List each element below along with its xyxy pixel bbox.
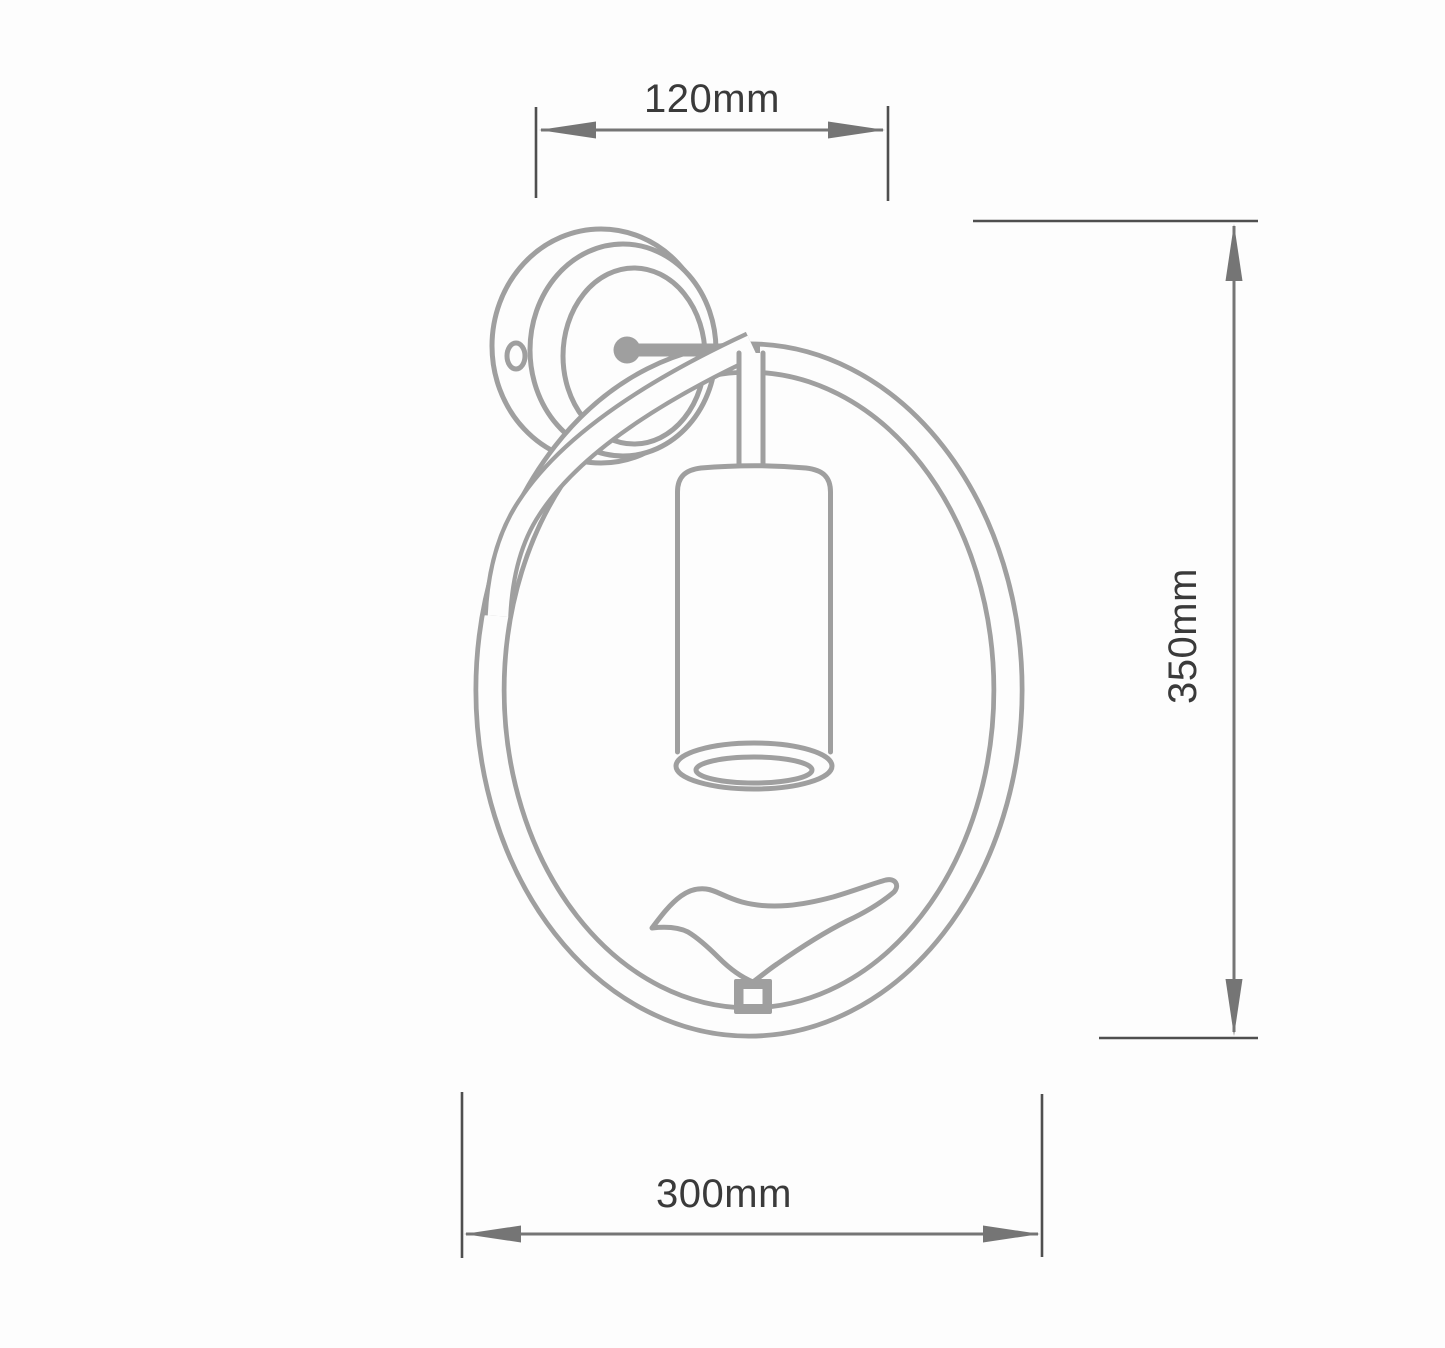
bird-clamp (734, 979, 772, 1014)
arrowhead-up-icon (1226, 224, 1243, 281)
wall-lamp-dimension-diagram: 120mm 350mm 300mm (0, 0, 1445, 1348)
dimension-bottom-width: 300mm (462, 1092, 1042, 1258)
lamp-cylinder (676, 466, 832, 789)
dimension-label-top-width: 120mm (644, 77, 780, 121)
arrowhead-down-icon (1226, 979, 1243, 1036)
screw-hole (507, 343, 525, 369)
stem-body (741, 353, 761, 471)
arrowhead-right-icon (983, 1226, 1040, 1243)
dimension-label-right-height: 350mm (1161, 568, 1205, 704)
arrowhead-right-icon (828, 122, 885, 139)
bird-figure (652, 880, 897, 982)
stem (739, 353, 763, 471)
dimension-top-width: 120mm (536, 77, 888, 201)
dimension-label-bottom-width: 300mm (656, 1172, 792, 1216)
bird-outline (652, 880, 897, 982)
clamp-inner (744, 989, 763, 1004)
arrowhead-left-icon (464, 1226, 521, 1243)
technical-drawing-canvas: 120mm 350mm 300mm (0, 0, 1445, 1348)
cylinder-body (678, 466, 831, 752)
arrowhead-left-icon (539, 122, 596, 139)
